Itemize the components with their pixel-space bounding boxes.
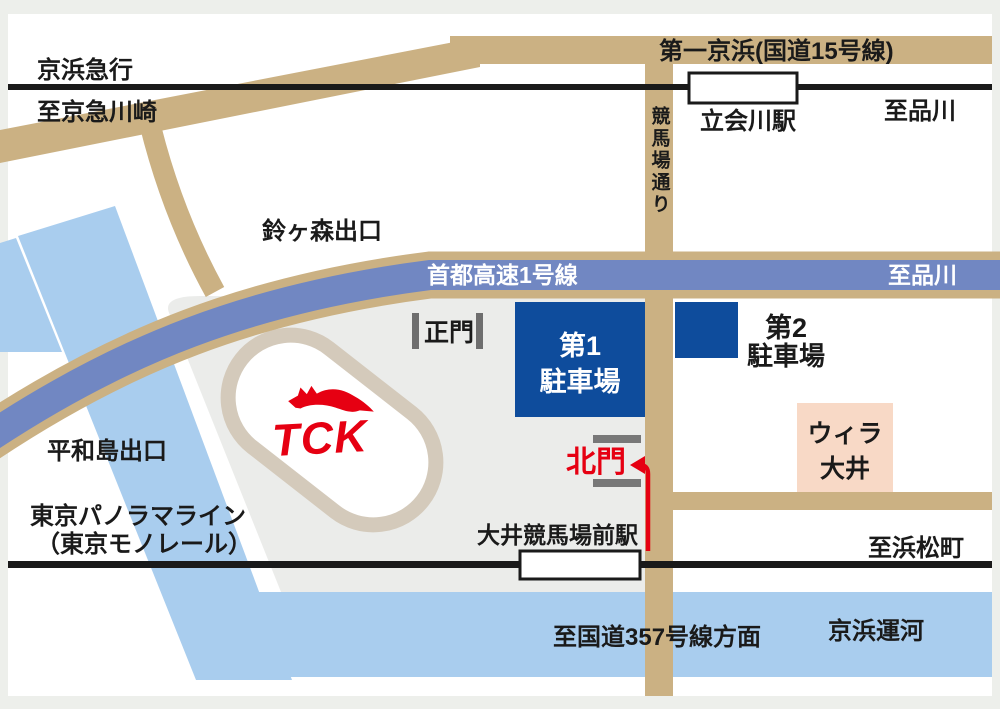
parking2-box [675, 302, 738, 358]
tck-logo-text: TCK [271, 410, 372, 466]
main-gate-bar-left-icon [412, 313, 419, 349]
tachiaigawa-station-label: 立会川駅 [700, 107, 796, 135]
to-keikyu-kawasaki-label: 至京急川崎 [37, 98, 157, 126]
daiichi-keihin-label: 第一京浜(国道15号線) [659, 37, 894, 65]
oikeibajo-station-label: 大井競馬場前駅 [477, 522, 638, 548]
monorail-line [8, 561, 992, 568]
main-gate-bar-right-icon [476, 313, 483, 349]
keihin-canal-label: 京浜運河 [828, 617, 924, 645]
access-map: TCK 京浜急行 至京急川崎 第一京浜(国道15号線) 立会川駅 至品川 競馬場… [0, 0, 1000, 709]
north-gate-label: 北門 [566, 446, 626, 479]
monorail-label-line2: （東京モノレール） [36, 530, 252, 558]
monorail-label-line1: 東京パノラマライン [30, 502, 246, 530]
oikeibajo-station-box [520, 551, 640, 579]
keihin-kyuko-line [8, 84, 992, 90]
suzugamori-exit-label: 鈴ヶ森出口 [262, 217, 382, 245]
parking2-label-line2: 駐車場 [747, 341, 825, 371]
road-east-horizontal [659, 492, 992, 510]
parking1-label-line1: 第1 [559, 330, 601, 361]
north-gate-bar-bottom-icon [593, 479, 641, 487]
to-route357-label: 至国道357号線方面 [553, 623, 761, 651]
to-shinagawa-top-label: 至品川 [884, 98, 956, 125]
keihin-kyuko-label: 京浜急行 [37, 56, 133, 84]
willa-oi-label-line2: 大井 [820, 455, 870, 483]
north-gate-bar-top-icon [593, 435, 641, 443]
parking1-label-line2: 駐車場 [540, 367, 621, 397]
willa-oi-label-line1: ウィラ [807, 420, 882, 448]
shuto-expressway-label: 首都高速1号線 [427, 262, 578, 288]
parking2-label-line1: 第2 [765, 312, 807, 343]
heiwajima-exit-label: 平和島出口 [47, 437, 167, 465]
to-shinagawa-expressway-label: 至品川 [888, 262, 957, 288]
main-gate-label: 正門 [424, 319, 474, 347]
to-hamamatsucho-label: 至浜松町 [868, 535, 964, 562]
tachiaigawa-station-box [689, 73, 797, 103]
keibajo-dori-label: 競馬場通り [649, 105, 671, 216]
